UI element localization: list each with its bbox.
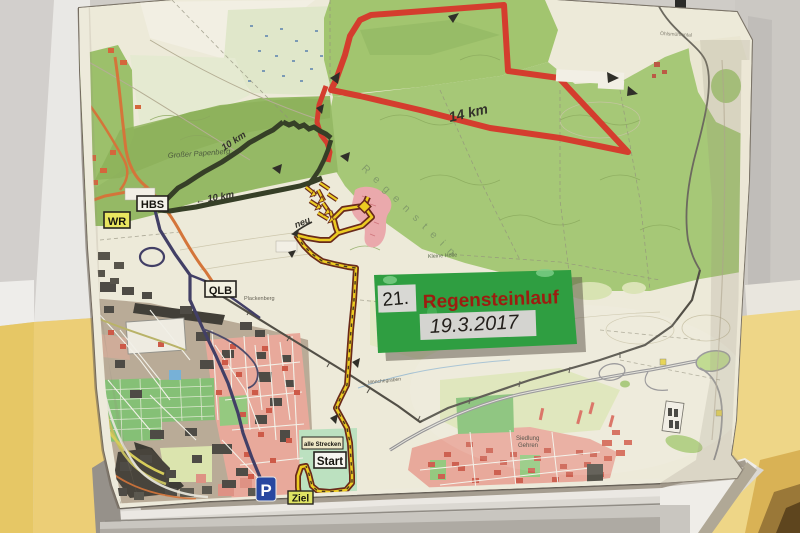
- svg-text:Start: Start: [317, 456, 343, 468]
- svg-text:21.: 21.: [382, 288, 410, 311]
- svg-text:alle Strecken: alle Strecken: [304, 442, 341, 448]
- svg-text:Ziel: Ziel: [292, 494, 309, 505]
- svg-text:19.3.2017: 19.3.2017: [429, 311, 520, 338]
- svg-text:HBS: HBS: [141, 199, 164, 211]
- svg-text:P: P: [260, 481, 271, 500]
- svg-text:WR: WR: [108, 216, 126, 228]
- svg-text:QLB: QLB: [209, 285, 232, 297]
